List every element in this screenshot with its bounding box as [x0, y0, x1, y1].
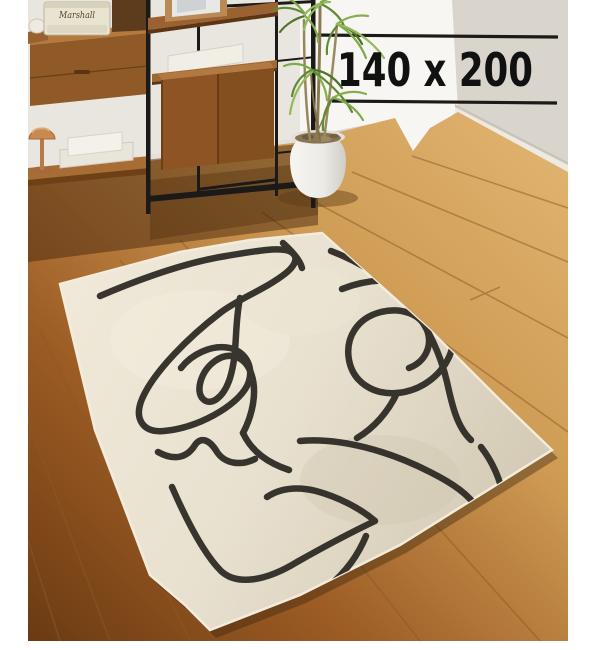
speaker: Marshall [44, 2, 110, 35]
speaker-top [44, 2, 110, 8]
lamp-stem [40, 138, 44, 170]
post-back-right [275, 0, 278, 196]
room-photo: Marshall [28, 0, 568, 641]
sideboard-front [30, 33, 148, 106]
bark-chip [302, 134, 314, 139]
product-image: Marshall [0, 0, 600, 650]
size-rule-top [312, 35, 558, 37]
size-label: 140 x 200 [337, 43, 533, 97]
drawer-handle [74, 70, 90, 74]
room-photo-svg: Marshall [28, 0, 568, 641]
decor-ball [29, 19, 45, 33]
speaker-grille [47, 25, 107, 33]
speaker-brand-label: Marshall [58, 11, 95, 21]
cabinet-door-right [218, 68, 274, 164]
shelf-side-dark [112, 0, 150, 32]
cabinet [158, 62, 274, 170]
bark-chip [329, 134, 339, 138]
size-rule-bottom [332, 101, 557, 103]
